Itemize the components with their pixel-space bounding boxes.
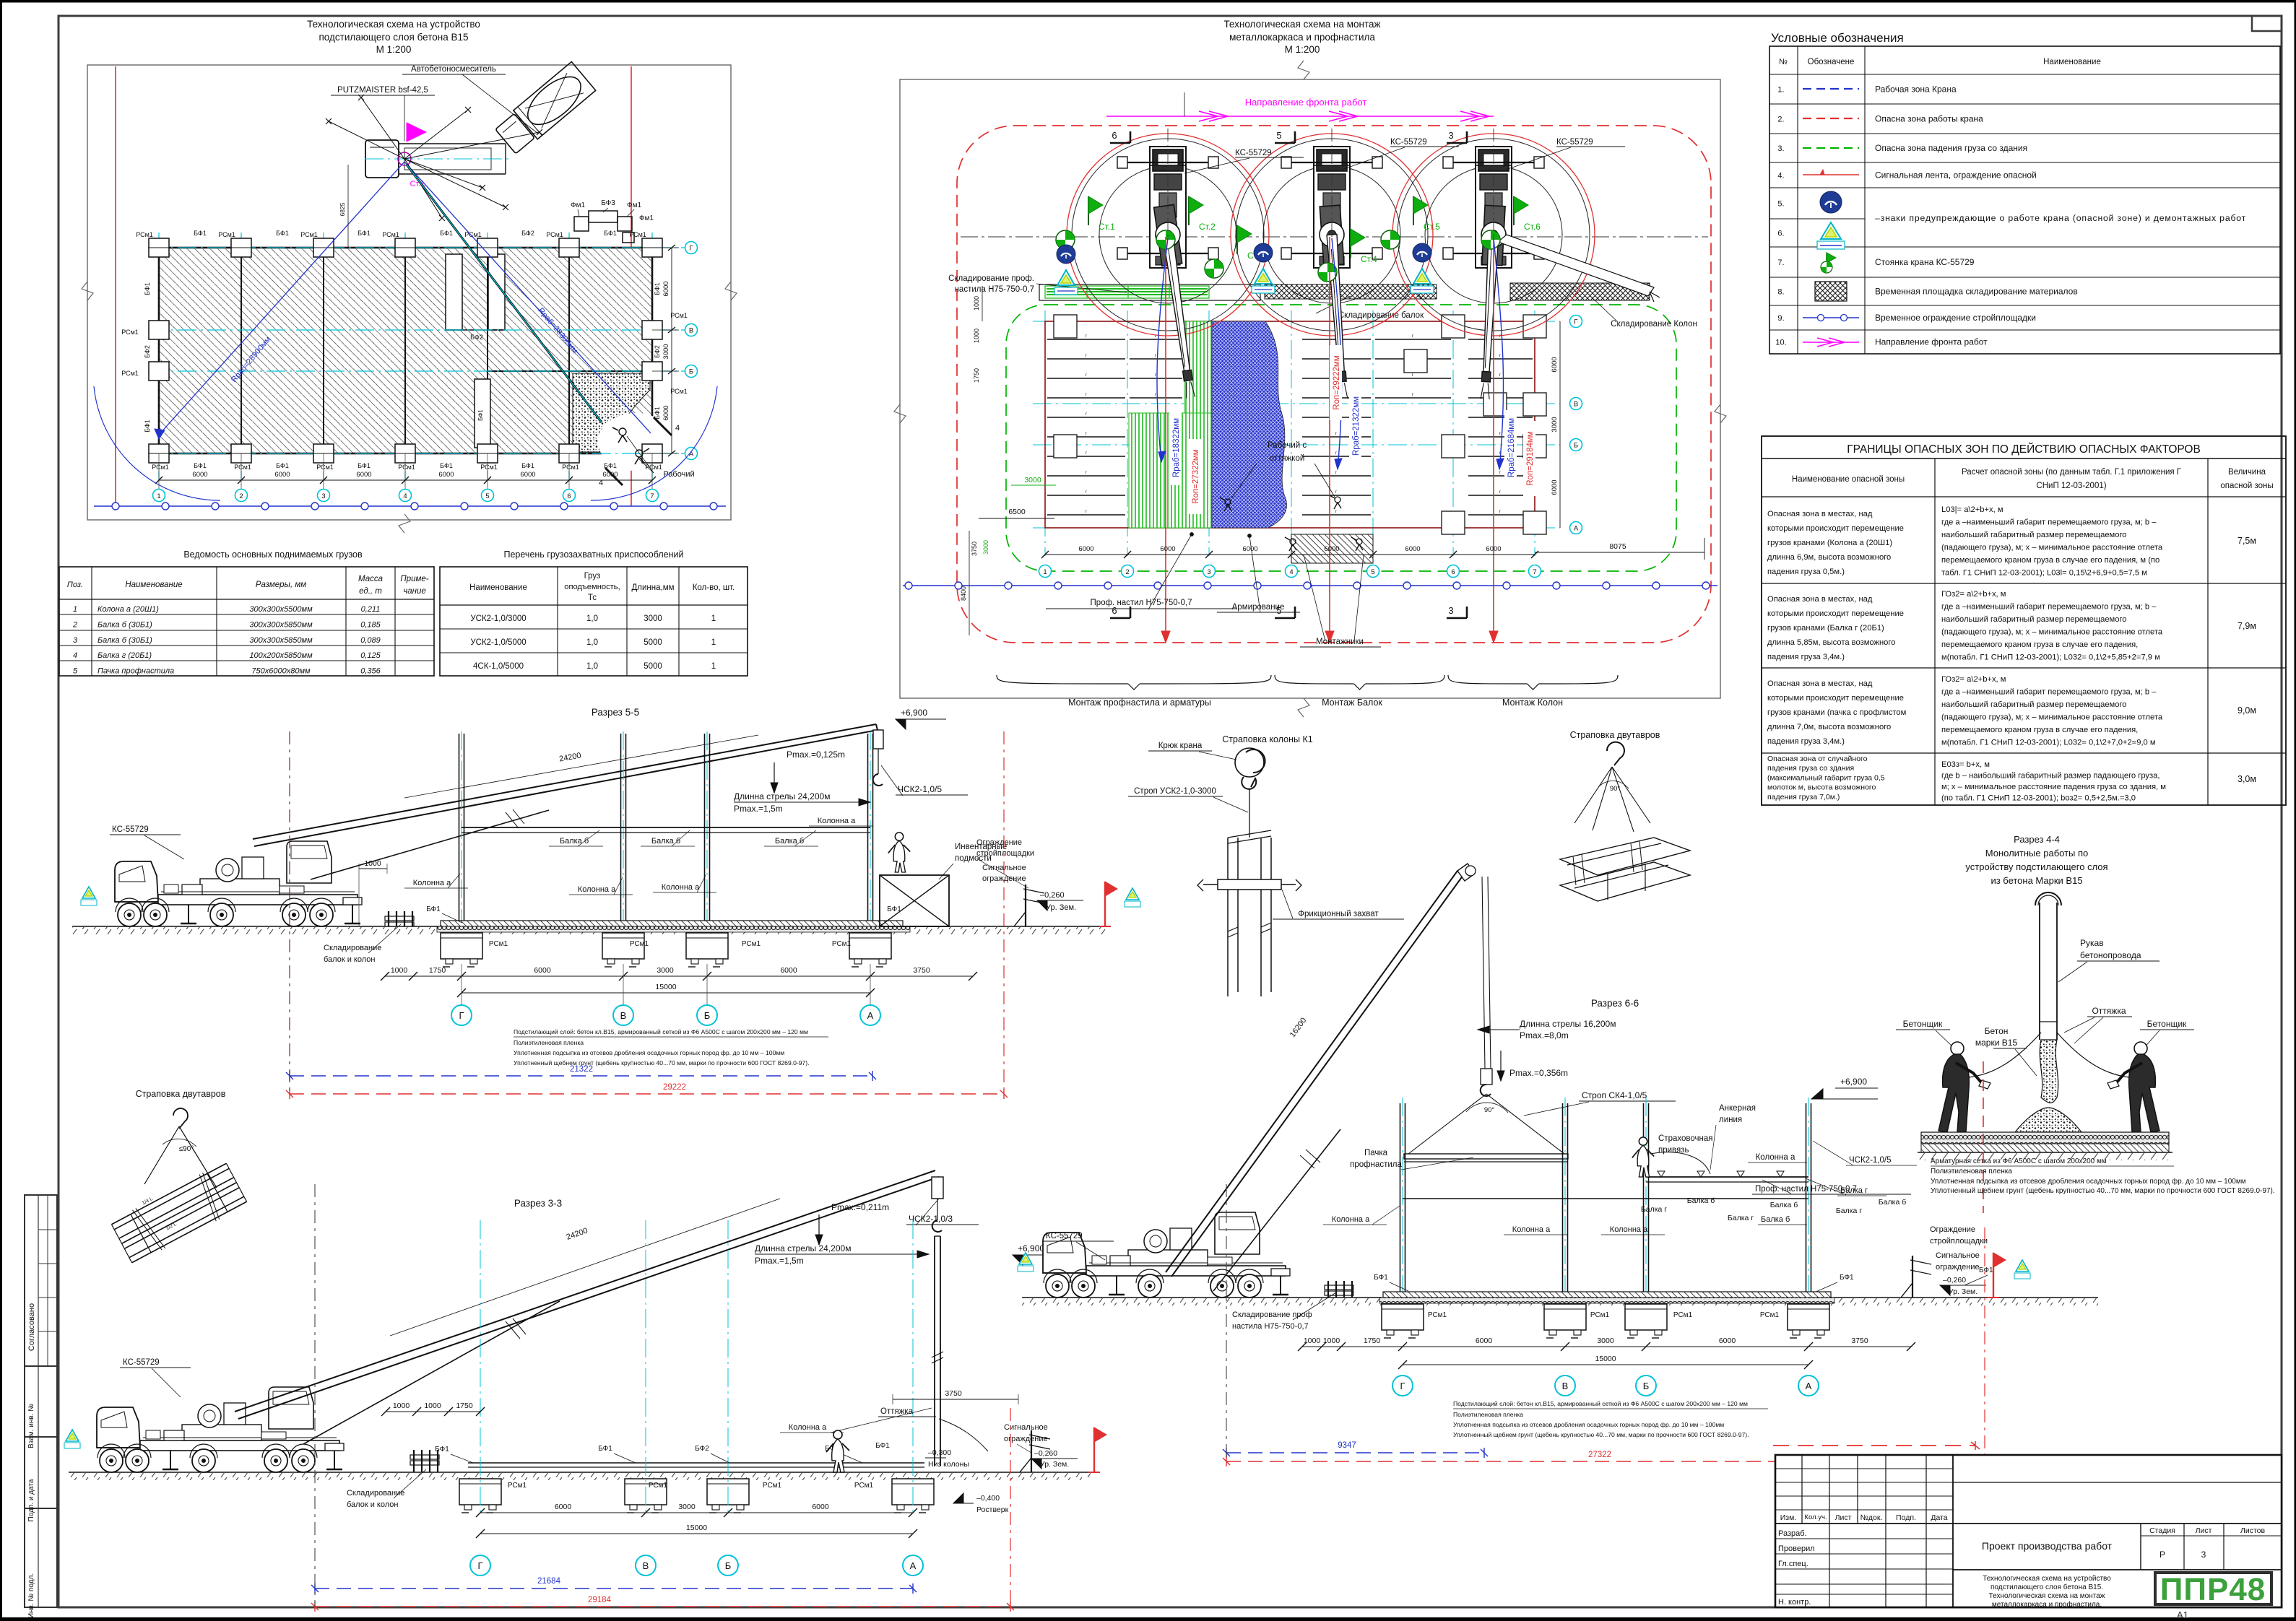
- svg-text:Фм1: Фм1: [639, 214, 654, 222]
- svg-text:–0,260: –0,260: [1034, 1449, 1057, 1458]
- svg-text:300х300х5850мм: 300х300х5850мм: [249, 620, 313, 629]
- svg-text:15000: 15000: [686, 1524, 707, 1532]
- svg-text:Наименование: Наименование: [469, 583, 527, 592]
- svg-text:м(потабл. Г1 СНиП 12-03-2001);: м(потабл. Г1 СНиП 12-03-2001); L032= 0,1…: [1941, 653, 2160, 662]
- svg-text:6000: 6000: [1719, 1337, 1736, 1345]
- svg-text:Взам. инв. №: Взам. инв. №: [27, 1404, 35, 1448]
- svg-text:3000: 3000: [1551, 417, 1559, 432]
- svg-text:–0,260: –0,260: [1943, 1276, 1966, 1285]
- svg-text:наибольший габаритный размер п: наибольший габаритный размер перемещаемо…: [1941, 531, 2127, 539]
- svg-text:Стадия: Стадия: [2149, 1526, 2175, 1535]
- svg-text:КС-55729: КС-55729: [1046, 1232, 1083, 1240]
- svg-text:Разраб.: Разраб.: [1778, 1529, 1807, 1538]
- svg-text:БФ2: БФ2: [695, 1445, 709, 1453]
- svg-text:Оттяжка: Оттяжка: [2092, 1006, 2126, 1016]
- svg-text:Rоп=29222мм: Rоп=29222мм: [1333, 355, 1341, 410]
- svg-text:Рабочая зона Крана: Рабочая зона Крана: [1875, 84, 1957, 95]
- svg-text:Согласовано: Согласовано: [27, 1303, 36, 1351]
- svg-text:Строп УСК2-1,0-3000: Строп УСК2-1,0-3000: [1134, 787, 1216, 796]
- svg-text:длинна 6,9м, высота возможного: длинна 6,9м, высота возможного: [1767, 553, 1891, 562]
- svg-text:балок и колон: балок и колон: [347, 1500, 398, 1509]
- svg-text:–0,300: –0,300: [928, 1448, 951, 1457]
- svg-text:Страповка колоны К1: Страповка колоны К1: [1222, 734, 1312, 744]
- svg-text:Длинна стрелы 24,200м: Длинна стрелы 24,200м: [734, 791, 830, 801]
- svg-text:Расчет опасной зоны (по данным: Расчет опасной зоны (по данным табл. Г.1…: [1962, 468, 2182, 477]
- svg-text:БФ1: БФ1: [521, 462, 534, 469]
- svg-text:3750: 3750: [913, 966, 930, 975]
- svg-text:Pmax.=1,5m: Pmax.=1,5m: [734, 804, 783, 814]
- svg-text:стройплощадки: стройплощадки: [1930, 1237, 1988, 1246]
- svg-text:29222: 29222: [663, 1083, 686, 1092]
- svg-text:Е03з= b+x, м: Е03з= b+x, м: [1941, 760, 1990, 769]
- svg-text:6000: 6000: [662, 405, 670, 420]
- svg-text:Опасна зона работы крана: Опасна зона работы крана: [1875, 114, 1983, 124]
- svg-text:ГОз2= a\2+b+x, м: ГОз2= a\2+b+x, м: [1941, 590, 2006, 599]
- svg-text:1: 1: [73, 605, 77, 614]
- svg-text:Рабочий: Рабочий: [663, 470, 694, 479]
- svg-text:опасной зоны: опасной зоны: [2220, 482, 2273, 490]
- svg-text:Н. контр.: Н. контр.: [1778, 1598, 1811, 1607]
- svg-text:БФ1: БФ1: [426, 905, 441, 913]
- svg-text:Колонна а: Колонна а: [1332, 1215, 1370, 1224]
- svg-text:1000: 1000: [393, 1401, 410, 1410]
- svg-text:металлокаркаса и профнастила.: металлокаркаса и профнастила.: [1992, 1600, 2102, 1609]
- svg-text:Б: Б: [1574, 442, 1578, 450]
- svg-text:≤90°: ≤90°: [179, 1145, 194, 1153]
- svg-text:5: 5: [1371, 568, 1374, 576]
- svg-text:Изм.: Изм.: [1780, 1513, 1797, 1522]
- svg-text:чание: чание: [403, 587, 425, 596]
- svg-text:Подстилающий слой: бетон кл.В1: Подстилающий слой: бетон кл.В15, армиров…: [514, 1028, 808, 1035]
- svg-text:3000: 3000: [644, 614, 662, 623]
- svg-text:наибольший габаритный размер п: наибольший габаритный размер перемещаемо…: [1941, 615, 2127, 624]
- svg-text:Тс: Тс: [588, 594, 597, 602]
- svg-text:наибольший габаритный размер п: наибольший габаритный размер перемещаемо…: [1941, 700, 2127, 709]
- svg-text:Крюк крана: Крюк крана: [1158, 742, 1203, 750]
- svg-text:Оттяжка: Оттяжка: [880, 1407, 914, 1416]
- svg-text:Колонна а: Колонна а: [578, 885, 616, 894]
- svg-text:+6,900: +6,900: [901, 708, 927, 718]
- svg-text:(падающего груза), м; x – мини: (падающего груза), м; x – минимальное ра…: [1941, 628, 2163, 637]
- svg-text:В: В: [620, 1010, 627, 1021]
- svg-text:РСм1: РСм1: [630, 940, 649, 948]
- svg-text:БФ1: БФ1: [358, 462, 371, 469]
- svg-text:Ст.4: Ст.4: [1361, 254, 1377, 264]
- svg-text:8.: 8.: [1777, 288, 1784, 297]
- svg-text:21322: 21322: [570, 1065, 593, 1074]
- svg-text:1000: 1000: [391, 966, 408, 975]
- svg-text:Обозначене: Обозначене: [1808, 58, 1855, 66]
- svg-text:Балка г: Балка г: [1840, 1186, 1868, 1195]
- svg-text:Фм1: Фм1: [571, 201, 585, 209]
- svg-text:Поз.: Поз.: [67, 581, 83, 589]
- svg-text:молоток м, высота возможного: молоток м, высота возможного: [1767, 783, 1876, 792]
- svg-text:м; x – минимальное расстояние: м; x – минимальное расстояние падения гр…: [1941, 783, 2166, 791]
- svg-text:6000: 6000: [1476, 1337, 1493, 1345]
- svg-text:Низ колоны: Низ колоны: [928, 1460, 969, 1469]
- svg-text:Величина: Величина: [2228, 468, 2266, 477]
- svg-text:1000: 1000: [973, 296, 980, 310]
- svg-text:Гл.спец.: Гл.спец.: [1778, 1560, 1808, 1568]
- svg-text:Опасна зона падения груза со з: Опасна зона падения груза со здания: [1875, 143, 2027, 153]
- svg-text:Rраб=21322мм: Rраб=21322мм: [1352, 396, 1361, 456]
- svg-text:5000: 5000: [644, 638, 662, 647]
- svg-text:Г: Г: [459, 1010, 464, 1021]
- svg-text:металлокаркаса и профнастила: металлокаркаса и профнастила: [1229, 32, 1375, 43]
- svg-text:100х200х5850мм: 100х200х5850мм: [249, 651, 313, 660]
- svg-text:8075: 8075: [1609, 542, 1626, 551]
- svg-text:Временная площадка складирован: Временная площадка складирование материа…: [1875, 287, 2078, 297]
- svg-text:из бетона Марки В15: из бетона Марки В15: [1990, 875, 2082, 886]
- svg-text:БФ1: БФ1: [477, 409, 484, 421]
- svg-text:оподъемность,: оподъемность,: [564, 583, 620, 591]
- svg-text:1750: 1750: [1364, 1337, 1381, 1345]
- svg-text:Уплотненный щебнем грунт (щебе: Уплотненный щебнем грунт (щебень крупнос…: [1453, 1431, 1749, 1438]
- svg-text:6000: 6000: [1486, 545, 1501, 553]
- svg-text:Страховочная: Страховочная: [1658, 1134, 1712, 1143]
- svg-text:БФ1: БФ1: [358, 230, 371, 237]
- svg-text:Подстилающий слой: бетон кл.В1: Подстилающий слой: бетон кл.В15, армиров…: [1453, 1400, 1748, 1407]
- svg-text:Разрез 3-3: Разрез 3-3: [514, 1198, 562, 1209]
- svg-text:Pmax.=0,211m: Pmax.=0,211m: [831, 1202, 889, 1212]
- svg-text:Складирование проф.: Складирование проф.: [948, 274, 1034, 283]
- svg-text:БФ3: БФ3: [601, 199, 615, 207]
- svg-text:падения груза 0,5м.): падения груза 0,5м.): [1767, 568, 1845, 576]
- svg-text:1000: 1000: [973, 329, 980, 343]
- svg-text:Бетонщик: Бетонщик: [1903, 1019, 1943, 1029]
- svg-text:1,0: 1,0: [586, 638, 598, 647]
- svg-text:Подп. и дата: Подп. и дата: [27, 1479, 35, 1521]
- svg-text:Б: Б: [689, 368, 693, 376]
- svg-text:РСм1: РСм1: [218, 231, 235, 238]
- svg-text:2: 2: [239, 492, 243, 500]
- svg-text:5: 5: [1276, 605, 1281, 616]
- svg-text:(по табл. Г1 СНиП 12-03-2001);: (по табл. Г1 СНиП 12-03-2001); bоз2= 0,5…: [1941, 794, 2136, 803]
- svg-text:Страповка двутавров: Страповка двутавров: [136, 1089, 226, 1099]
- svg-text:А1: А1: [2177, 1609, 2188, 1620]
- svg-text:6000: 6000: [1551, 357, 1559, 372]
- svg-text:7.: 7.: [1777, 258, 1784, 267]
- svg-text:ЧСК2-1,0/3: ЧСК2-1,0/3: [909, 1214, 953, 1224]
- svg-text:В: В: [1562, 1381, 1569, 1391]
- svg-text:6000: 6000: [1405, 545, 1420, 553]
- svg-text:РСм1: РСм1: [316, 464, 334, 471]
- svg-text:РСм1: РСм1: [832, 940, 852, 948]
- svg-text:Складирование проф: Складирование проф: [1232, 1311, 1312, 1319]
- svg-text:6500: 6500: [1008, 508, 1026, 516]
- svg-text:Инв. № подл.: Инв. № подл.: [27, 1573, 35, 1618]
- svg-text:РСм1: РСм1: [300, 231, 318, 238]
- svg-text:9.: 9.: [1777, 314, 1784, 323]
- svg-text:Технологическая схема на монта: Технологическая схема на монтаж: [1223, 19, 1380, 30]
- svg-text:№: №: [1779, 58, 1788, 66]
- svg-text:Балка г (20Б1): Балка г (20Б1): [98, 651, 152, 660]
- svg-text:Уплотненная подсыпка из отсево: Уплотненная подсыпка из отсевов дроблени…: [514, 1049, 784, 1056]
- svg-text:300х300х5500мм: 300х300х5500мм: [249, 605, 313, 614]
- svg-text:Балка г: Балка г: [1836, 1207, 1862, 1215]
- svg-text:29184: 29184: [588, 1596, 612, 1604]
- svg-text:1000: 1000: [364, 859, 381, 868]
- svg-text:Автобетоносмеситель: Автобетоносмеситель: [411, 65, 496, 74]
- svg-text:Уплотненная подсыпка из отсево: Уплотненная подсыпка из отсевов дроблени…: [1931, 1177, 2246, 1186]
- svg-text:М 1:200: М 1:200: [1285, 44, 1320, 55]
- svg-text:Балка г: Балка г: [1641, 1205, 1667, 1214]
- svg-text:Наименование опасной зоны: Наименование опасной зоны: [1792, 475, 1905, 484]
- svg-text:ЧСК2-1,0/5: ЧСК2-1,0/5: [898, 784, 942, 794]
- svg-text:Rраб=18322мм: Rраб=18322мм: [1172, 418, 1181, 477]
- svg-text:грузов кранами (Колона а (20Ш1: грузов кранами (Колона а (20Ш1): [1767, 539, 1892, 547]
- svg-text:профнастила: профнастила: [1350, 1160, 1402, 1169]
- svg-text:Pmax.=0,356m: Pmax.=0,356m: [1509, 1068, 1568, 1078]
- svg-text:6000: 6000: [812, 1503, 829, 1511]
- svg-text:3,0м: 3,0м: [2237, 774, 2256, 784]
- svg-text:+6,900: +6,900: [1018, 1243, 1044, 1253]
- svg-text:длинна 5,85м, высота возможног: длинна 5,85м, высота возможного: [1767, 638, 1895, 647]
- svg-text:КС-55729: КС-55729: [112, 825, 149, 834]
- svg-text:линия: линия: [1719, 1116, 1742, 1124]
- svg-text:3: 3: [73, 636, 78, 645]
- svg-text:настила Н75-750-0,7: настила Н75-750-0,7: [955, 285, 1034, 294]
- svg-text:7: 7: [650, 492, 654, 500]
- svg-text:В: В: [643, 1560, 649, 1571]
- svg-text:300х300х5850мм: 300х300х5850мм: [249, 636, 313, 645]
- svg-text:6000: 6000: [662, 281, 670, 296]
- svg-text:6: 6: [1451, 568, 1455, 576]
- svg-text:Направление фронта работ: Направление фронта работ: [1875, 337, 1988, 347]
- svg-text:1750: 1750: [973, 368, 980, 383]
- svg-text:БФ1: БФ1: [604, 230, 617, 237]
- svg-text:Опасная зона в местах, над: Опасная зона в местах, над: [1767, 679, 1873, 688]
- svg-text:4: 4: [403, 492, 407, 500]
- svg-text:УСК2-1,0/3000: УСК2-1,0/3000: [470, 614, 526, 623]
- svg-text:БФ1: БФ1: [144, 420, 151, 433]
- svg-text:РСм1: РСм1: [508, 1482, 527, 1490]
- svg-text:которыми происходит перемещени: которыми происходит перемещение: [1767, 694, 1904, 703]
- svg-text:3: 3: [1448, 130, 1453, 141]
- svg-text:Листов: Листов: [2240, 1526, 2266, 1535]
- svg-text:0,356: 0,356: [360, 667, 381, 676]
- svg-text:БФ1: БФ1: [598, 1445, 612, 1453]
- svg-text:1000: 1000: [424, 1401, 441, 1410]
- svg-text:5: 5: [485, 492, 489, 500]
- svg-text:А: А: [867, 1010, 874, 1021]
- svg-text:Полиэтиленовая пленка: Полиэтиленовая пленка: [514, 1039, 584, 1046]
- svg-text:БФ1: БФ1: [654, 282, 661, 295]
- svg-text:90°: 90°: [1610, 785, 1621, 793]
- svg-text:Опасная зона от случайного: Опасная зона от случайного: [1767, 755, 1868, 763]
- svg-text:А: А: [1574, 525, 1579, 533]
- svg-text:Сигнальная лента, ограждение о: Сигнальная лента, ограждение опасной: [1875, 170, 2037, 181]
- svg-text:6000: 6000: [1242, 545, 1257, 553]
- svg-text:Монтаж профнастила и арматуры: Монтаж профнастила и арматуры: [1068, 697, 1211, 708]
- svg-text:где a –наименьший габарит пере: где a –наименьший габарит перемещаемого …: [1941, 603, 2157, 612]
- svg-text:Направление фронта работ: Направление фронта работ: [1245, 97, 1367, 108]
- svg-text:Колона а (20Ш1): Колона а (20Ш1): [98, 605, 159, 614]
- svg-text:Дата: Дата: [1931, 1513, 1947, 1522]
- svg-text:РСм1: РСм1: [546, 231, 563, 238]
- svg-text:Сигнальное: Сигнальное: [1936, 1251, 1980, 1260]
- svg-text:0,125: 0,125: [360, 651, 381, 660]
- svg-text:4: 4: [599, 479, 603, 487]
- svg-text:Арматурная сетка из Ф6 А500С с: Арматурная сетка из Ф6 А500С с шагом 200…: [1931, 1157, 2107, 1165]
- svg-text:6000: 6000: [274, 471, 290, 479]
- svg-text:Монтаж Колон: Монтаж Колон: [1502, 697, 1563, 708]
- svg-text:2: 2: [72, 620, 77, 629]
- svg-text:РСм1: РСм1: [562, 464, 579, 471]
- svg-text:3750: 3750: [945, 1389, 962, 1398]
- svg-text:РСм1: РСм1: [398, 464, 415, 471]
- svg-text:БФ1: БФ1: [440, 230, 453, 237]
- svg-text:БФ1: БФ1: [194, 462, 207, 469]
- svg-text:1: 1: [1043, 568, 1047, 576]
- svg-text:РСм1: РСм1: [742, 940, 761, 948]
- svg-text:Балка г: Балка г: [1728, 1214, 1754, 1222]
- svg-text:5.: 5.: [1777, 200, 1784, 209]
- svg-text:3000: 3000: [982, 540, 989, 555]
- svg-text:Ст.2: Ст.2: [1199, 222, 1216, 232]
- svg-text:Наименование: Наименование: [125, 581, 182, 589]
- svg-text:падения груза со здания: падения груза со здания: [1767, 764, 1854, 773]
- svg-text:0,211: 0,211: [361, 605, 381, 614]
- svg-text:Колонна а: Колонна а: [818, 817, 856, 825]
- svg-text:27322: 27322: [1588, 1451, 1611, 1459]
- svg-text:Ст.1: Ст.1: [1099, 222, 1115, 232]
- svg-text:Ростверк: Ростверк: [976, 1505, 1009, 1514]
- svg-text:Ограждение: Ограждение: [1930, 1225, 1975, 1234]
- svg-text:марки В15: марки В15: [1975, 1038, 2018, 1048]
- svg-text:УСК2-1,0/5000: УСК2-1,0/5000: [470, 638, 526, 647]
- svg-text:Балка б: Балка б: [651, 837, 680, 846]
- svg-text:подстилающего слоя бетона В15.: подстилающего слоя бетона В15.: [1990, 1583, 2103, 1591]
- svg-text:Ст.5: Ст.5: [1424, 222, 1440, 232]
- svg-text:Наименование: Наименование: [2043, 58, 2101, 66]
- svg-text:В: В: [689, 327, 693, 335]
- svg-text:КС-55729: КС-55729: [1235, 149, 1272, 157]
- svg-text:Балка б: Балка б: [1879, 1198, 1906, 1207]
- svg-text:Пачка: Пачка: [1364, 1149, 1388, 1157]
- svg-text:Ур. Зем.: Ур. Зем.: [1040, 1460, 1069, 1469]
- svg-text:15000: 15000: [1595, 1355, 1616, 1363]
- svg-text:ед., т: ед., т: [359, 587, 382, 596]
- svg-text:10.: 10.: [1775, 339, 1786, 347]
- svg-text:4.: 4.: [1777, 172, 1784, 181]
- svg-text:6000: 6000: [534, 966, 551, 975]
- svg-text:РСм1: РСм1: [1760, 1311, 1780, 1319]
- svg-text:–знаки предупреждающие о работ: –знаки предупреждающие о работе крана (о…: [1875, 213, 2246, 223]
- svg-text:Колонна а: Колонна а: [1756, 1153, 1795, 1162]
- svg-text:РСм1: РСм1: [489, 940, 508, 948]
- svg-text:РСм1: РСм1: [136, 231, 153, 238]
- svg-text:6000: 6000: [555, 1503, 572, 1511]
- svg-text:где a –наименьший габарит пере: где a –наименьший габарит перемещаемого …: [1941, 518, 2157, 527]
- svg-text:0,185: 0,185: [360, 620, 381, 629]
- svg-text:Pmax.=1,5m: Pmax.=1,5m: [755, 1256, 804, 1266]
- svg-text:3: 3: [1448, 605, 1453, 616]
- svg-text:БФ2: БФ2: [144, 345, 151, 358]
- svg-text:РСм1: РСм1: [1590, 1311, 1610, 1319]
- svg-text:перемещаемого краном груза в с: перемещаемого краном груза в случае его …: [1941, 640, 2138, 649]
- svg-text:Технологическая схема на монта: Технологическая схема на монтаж: [1989, 1592, 2105, 1600]
- svg-text:6: 6: [1112, 605, 1117, 616]
- svg-text:ППР48: ППР48: [2160, 1572, 2266, 1607]
- svg-text:Монтажники: Монтажники: [1316, 638, 1364, 646]
- svg-text:1000: 1000: [1323, 1337, 1340, 1345]
- svg-text:9347: 9347: [1338, 1441, 1356, 1450]
- svg-text:1750: 1750: [456, 1401, 473, 1410]
- svg-text:–0,400: –0,400: [976, 1494, 1000, 1503]
- svg-text:Pmax.=8,0m: Pmax.=8,0m: [1520, 1030, 1569, 1040]
- svg-text:Rоп=27322мм: Rоп=27322мм: [1192, 449, 1200, 504]
- svg-text:5: 5: [73, 667, 78, 676]
- svg-text:7: 7: [1533, 568, 1536, 576]
- svg-text:2.: 2.: [1777, 116, 1784, 124]
- svg-text:7,9м: 7,9м: [2237, 621, 2256, 631]
- svg-text:М 1:200: М 1:200: [376, 44, 412, 55]
- svg-text:3000: 3000: [1024, 476, 1041, 484]
- svg-text:Г: Г: [689, 245, 693, 253]
- svg-text:В: В: [1574, 401, 1578, 409]
- svg-text:6000: 6000: [520, 471, 535, 479]
- svg-text:(падающего груза), м; x – мини: (падающего груза), м; x – минимальное ра…: [1941, 544, 2163, 552]
- svg-text:РСм1: РСм1: [854, 1482, 874, 1490]
- svg-text:Ур. Зем.: Ур. Зем.: [1949, 1287, 1977, 1296]
- svg-text:Приме-: Приме-: [400, 575, 428, 583]
- svg-text:Опасная зона в местах, над: Опасная зона в местах, над: [1767, 510, 1873, 518]
- svg-text:3: 3: [1207, 568, 1210, 576]
- svg-text:+6,900: +6,900: [1840, 1077, 1867, 1087]
- svg-text:РСм1: РСм1: [121, 370, 139, 377]
- svg-text:Колонна а: Колонна а: [662, 883, 700, 892]
- svg-text:6825: 6825: [339, 202, 346, 216]
- svg-text:Длинна стрелы 16,200м: Длинна стрелы 16,200м: [1520, 1019, 1616, 1029]
- svg-text:Рабочий с: Рабочий с: [1268, 441, 1307, 450]
- svg-text:Подп.: Подп.: [1896, 1513, 1916, 1522]
- svg-text:Пачка профнастила: Пачка профнастила: [98, 667, 174, 676]
- svg-text:Уплотненный щебнем грунт (щебе: Уплотненный щебнем грунт (щебень крупнос…: [514, 1059, 810, 1066]
- svg-text:7,5м: 7,5м: [2237, 536, 2256, 546]
- svg-text:Разрез 4-4: Разрез 4-4: [2014, 834, 2060, 845]
- svg-text:БФ2: БФ2: [521, 230, 534, 237]
- svg-text:4: 4: [73, 651, 77, 660]
- svg-text:Г: Г: [477, 1560, 482, 1571]
- svg-text:привязь: привязь: [1658, 1146, 1689, 1155]
- svg-text:БФ1: БФ1: [887, 905, 901, 913]
- svg-text:Длинна стрелы 24,200м: Длинна стрелы 24,200м: [755, 1243, 851, 1253]
- svg-text:3000: 3000: [1597, 1337, 1614, 1345]
- svg-text:Rраб=21684мм: Rраб=21684мм: [1507, 418, 1516, 477]
- svg-text:Стоянка крана КС-55729: Стоянка крана КС-55729: [1875, 257, 1975, 267]
- svg-text:3000: 3000: [657, 966, 674, 975]
- svg-text:Складирование: Складирование: [324, 944, 381, 952]
- svg-text:РСм1: РСм1: [121, 329, 139, 336]
- svg-text:Условные обозначения: Условные обозначения: [1771, 31, 1904, 45]
- svg-text:Колонна а: Колонна а: [789, 1423, 827, 1432]
- svg-text:Бетон: Бетон: [1985, 1026, 2009, 1036]
- svg-text:табл. Г1 СНиП 12-03-2001); L03: табл. Г1 СНиП 12-03-2001); L03l= 0,15\2+…: [1941, 569, 2147, 578]
- svg-text:А: А: [1806, 1381, 1812, 1391]
- svg-text:1750: 1750: [429, 966, 446, 975]
- svg-text:Колонна а: Колонна а: [1610, 1225, 1648, 1234]
- svg-text:РСм1: РСм1: [480, 464, 498, 471]
- svg-text:БФ1: БФ1: [144, 282, 151, 295]
- svg-text:6: 6: [567, 492, 571, 500]
- svg-text:где a –наименьший габарит пере: где a –наименьший габарит перемещаемого …: [1941, 688, 2157, 697]
- svg-text:90°: 90°: [1484, 1106, 1495, 1114]
- svg-text:Временное ограждение стройплощ: Временное ограждение стройплощадки: [1875, 313, 2036, 323]
- svg-text:–0,260: –0,260: [1040, 891, 1065, 900]
- svg-text:Технологическая схема на устро: Технологическая схема на устройство: [1983, 1575, 2111, 1583]
- svg-text:РСм1: РСм1: [1673, 1311, 1693, 1319]
